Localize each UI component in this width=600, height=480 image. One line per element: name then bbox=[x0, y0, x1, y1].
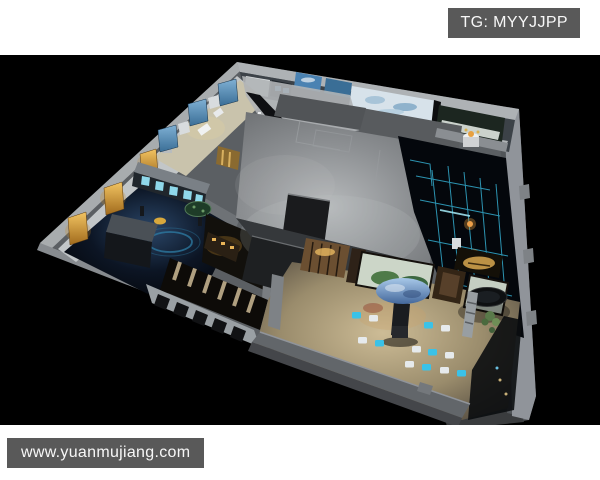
page: TG: MYYJJPP www.yuanmujiang.com bbox=[0, 0, 600, 480]
tg-watermark-text: TG: MYYJJPP bbox=[460, 14, 568, 32]
website-watermark: www.yuanmujiang.com bbox=[7, 438, 204, 468]
floorplan-3d-render bbox=[0, 0, 600, 480]
tg-watermark-label: TG: MYYJJPP bbox=[448, 8, 580, 38]
website-watermark-text: www.yuanmujiang.com bbox=[21, 444, 190, 462]
